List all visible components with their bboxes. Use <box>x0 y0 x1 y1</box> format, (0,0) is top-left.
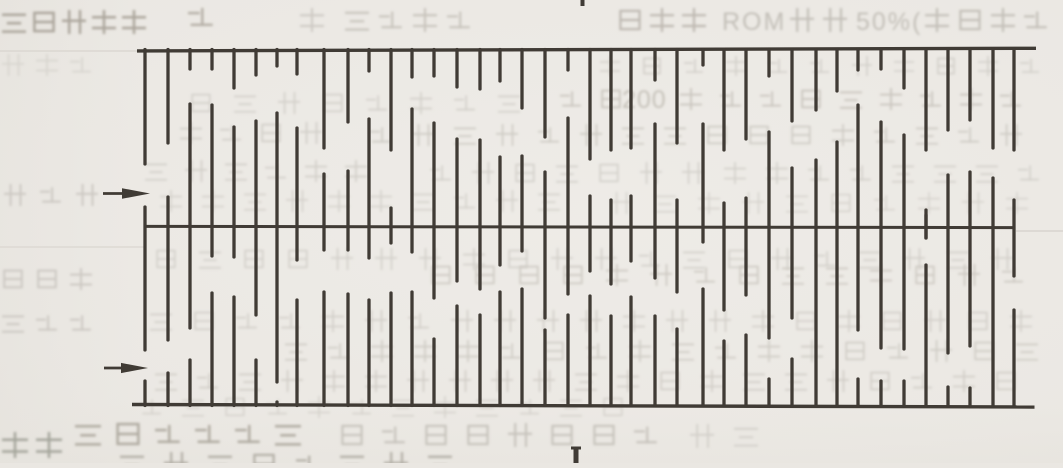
svg-text:200: 200 <box>622 86 667 114</box>
svg-text:50%(: 50%( <box>856 8 922 36</box>
svg-text:ROM: ROM <box>722 8 786 36</box>
